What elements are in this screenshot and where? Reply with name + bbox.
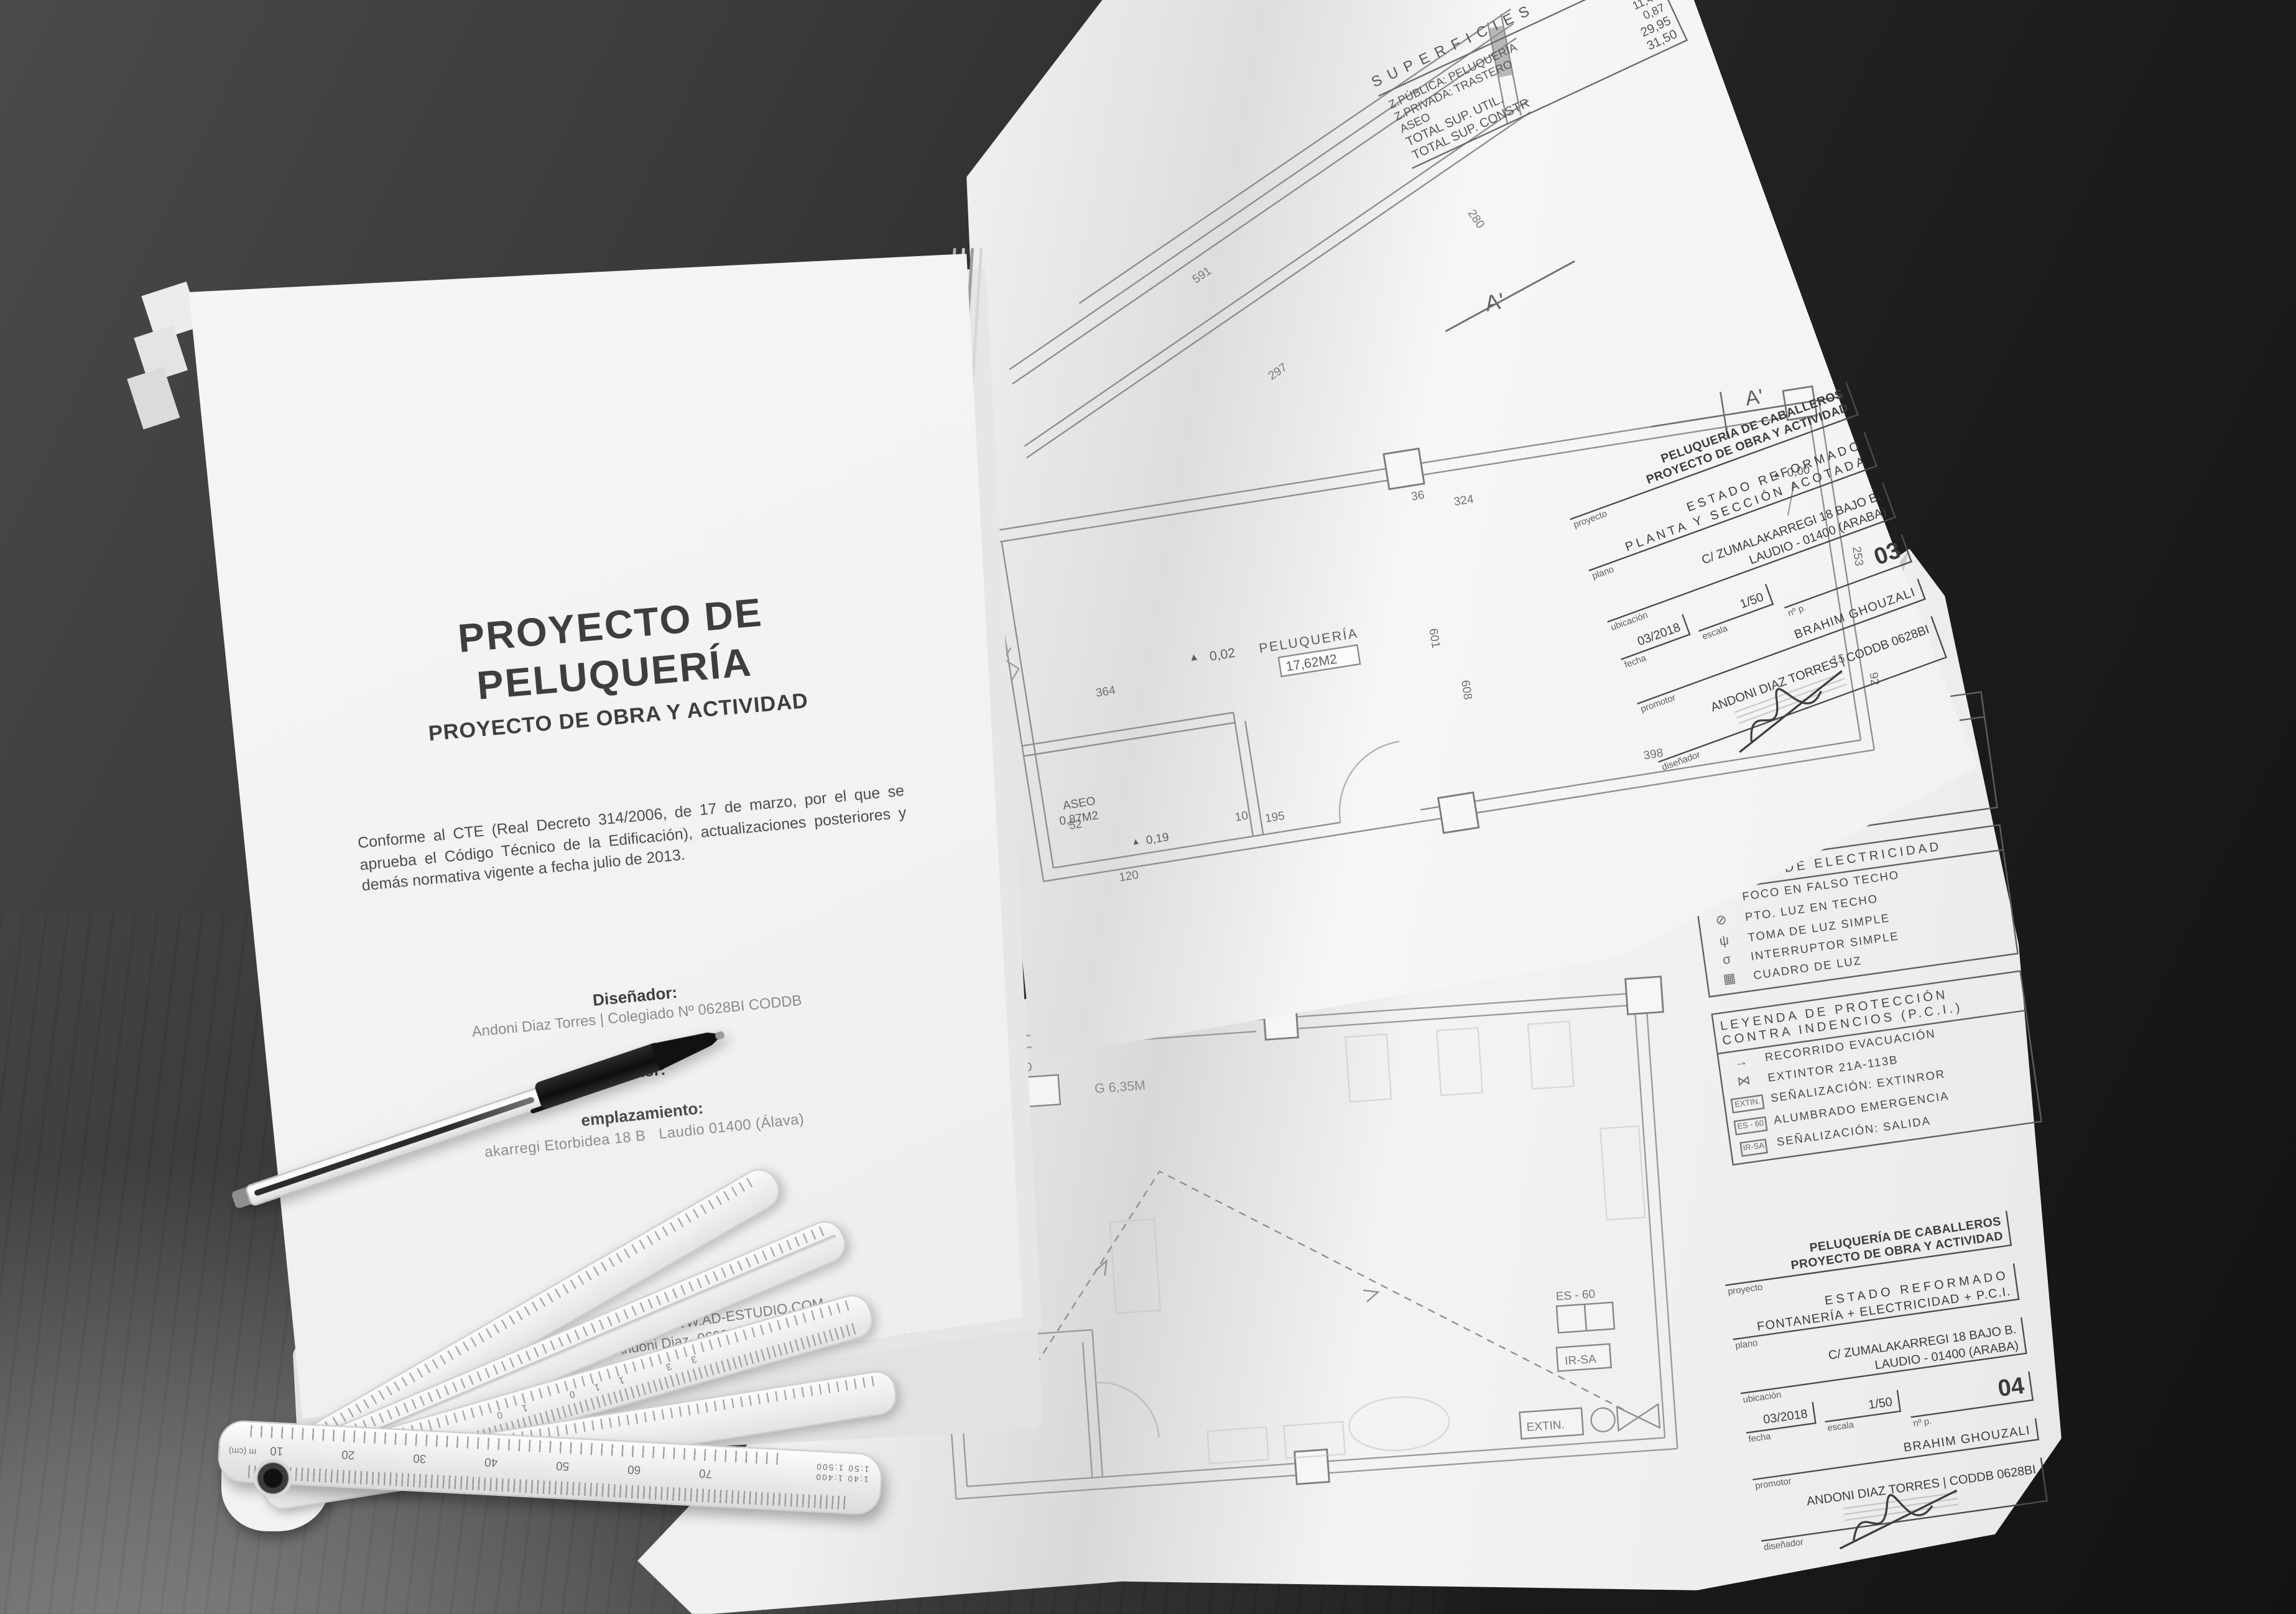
aseo-level: 0,19 — [1145, 831, 1170, 847]
title-block-04: PELUQUERÍA DE CABALLEROS PROYECTO DE OBR… — [1721, 1210, 2050, 1558]
legend-pci: LEYENDA DE PROTECCIÓN CONTRA INDENCIOS (… — [1711, 970, 2042, 1164]
irsa-box-label: IR-SA — [1565, 1353, 1597, 1368]
svg-text:324: 324 — [1453, 493, 1475, 509]
svg-text:▲: ▲ — [1131, 836, 1141, 847]
extin-sign-icon: EXTIN. — [1731, 1094, 1764, 1113]
svg-text:608: 608 — [1458, 680, 1474, 701]
photo-scene: ES - 60 ES - 60 IR-SA EXTIN. G 6,35M G 9… — [0, 0, 2296, 1614]
extin-box-label: EXTIN. — [1526, 1419, 1565, 1434]
fuse-box-icon: ▦ — [1713, 969, 1747, 989]
svg-text:195: 195 — [1264, 809, 1286, 826]
front-ruler-scales: 1:40 1:400 1:50 1:500 — [786, 1458, 869, 1483]
section-dim: 297 — [1266, 361, 1290, 383]
room-level: 0,02 — [1208, 645, 1236, 664]
svg-text:▲: ▲ — [1188, 650, 1200, 663]
section-cut-label: A' — [1483, 288, 1507, 316]
pen-cap-tip — [715, 1031, 725, 1041]
section-dim: 280 — [1465, 207, 1487, 231]
es60-box-b-label: ES - 60 — [1555, 1288, 1596, 1303]
evacuation-arrow-icon: → — [1724, 1051, 1759, 1071]
emergency-light-icon: ES - 60 — [1733, 1115, 1767, 1135]
section-dim: 591 — [1190, 264, 1214, 286]
ceiling-light-icon: ⊘ — [1705, 910, 1739, 931]
socket-icon: ψ — [1708, 931, 1742, 950]
evac-distance-a: G 6,35M — [1094, 1077, 1146, 1096]
front-ruler-unit: m (cm) — [229, 1445, 257, 1455]
extinguisher-icon: ⋈ — [1727, 1070, 1761, 1091]
svg-text:120: 120 — [1118, 869, 1140, 885]
svg-text:601: 601 — [1426, 627, 1442, 649]
evacuation-route — [1016, 1140, 1626, 1452]
svg-text:364: 364 — [1095, 684, 1117, 700]
furniture-outlines — [1098, 1017, 1660, 1469]
switch-icon: σ — [1710, 950, 1744, 969]
exit-sign-icon: IR-SA — [1739, 1138, 1769, 1156]
plan-cut-label: A' — [1744, 385, 1765, 410]
svg-text:10: 10 — [1234, 809, 1249, 824]
svg-text:36: 36 — [1410, 489, 1425, 504]
tb04-date: 03/2018 — [1749, 1406, 1808, 1429]
extintor-bowtie-icon — [1617, 1404, 1660, 1431]
ruler-hinge-rivet — [254, 1459, 292, 1498]
